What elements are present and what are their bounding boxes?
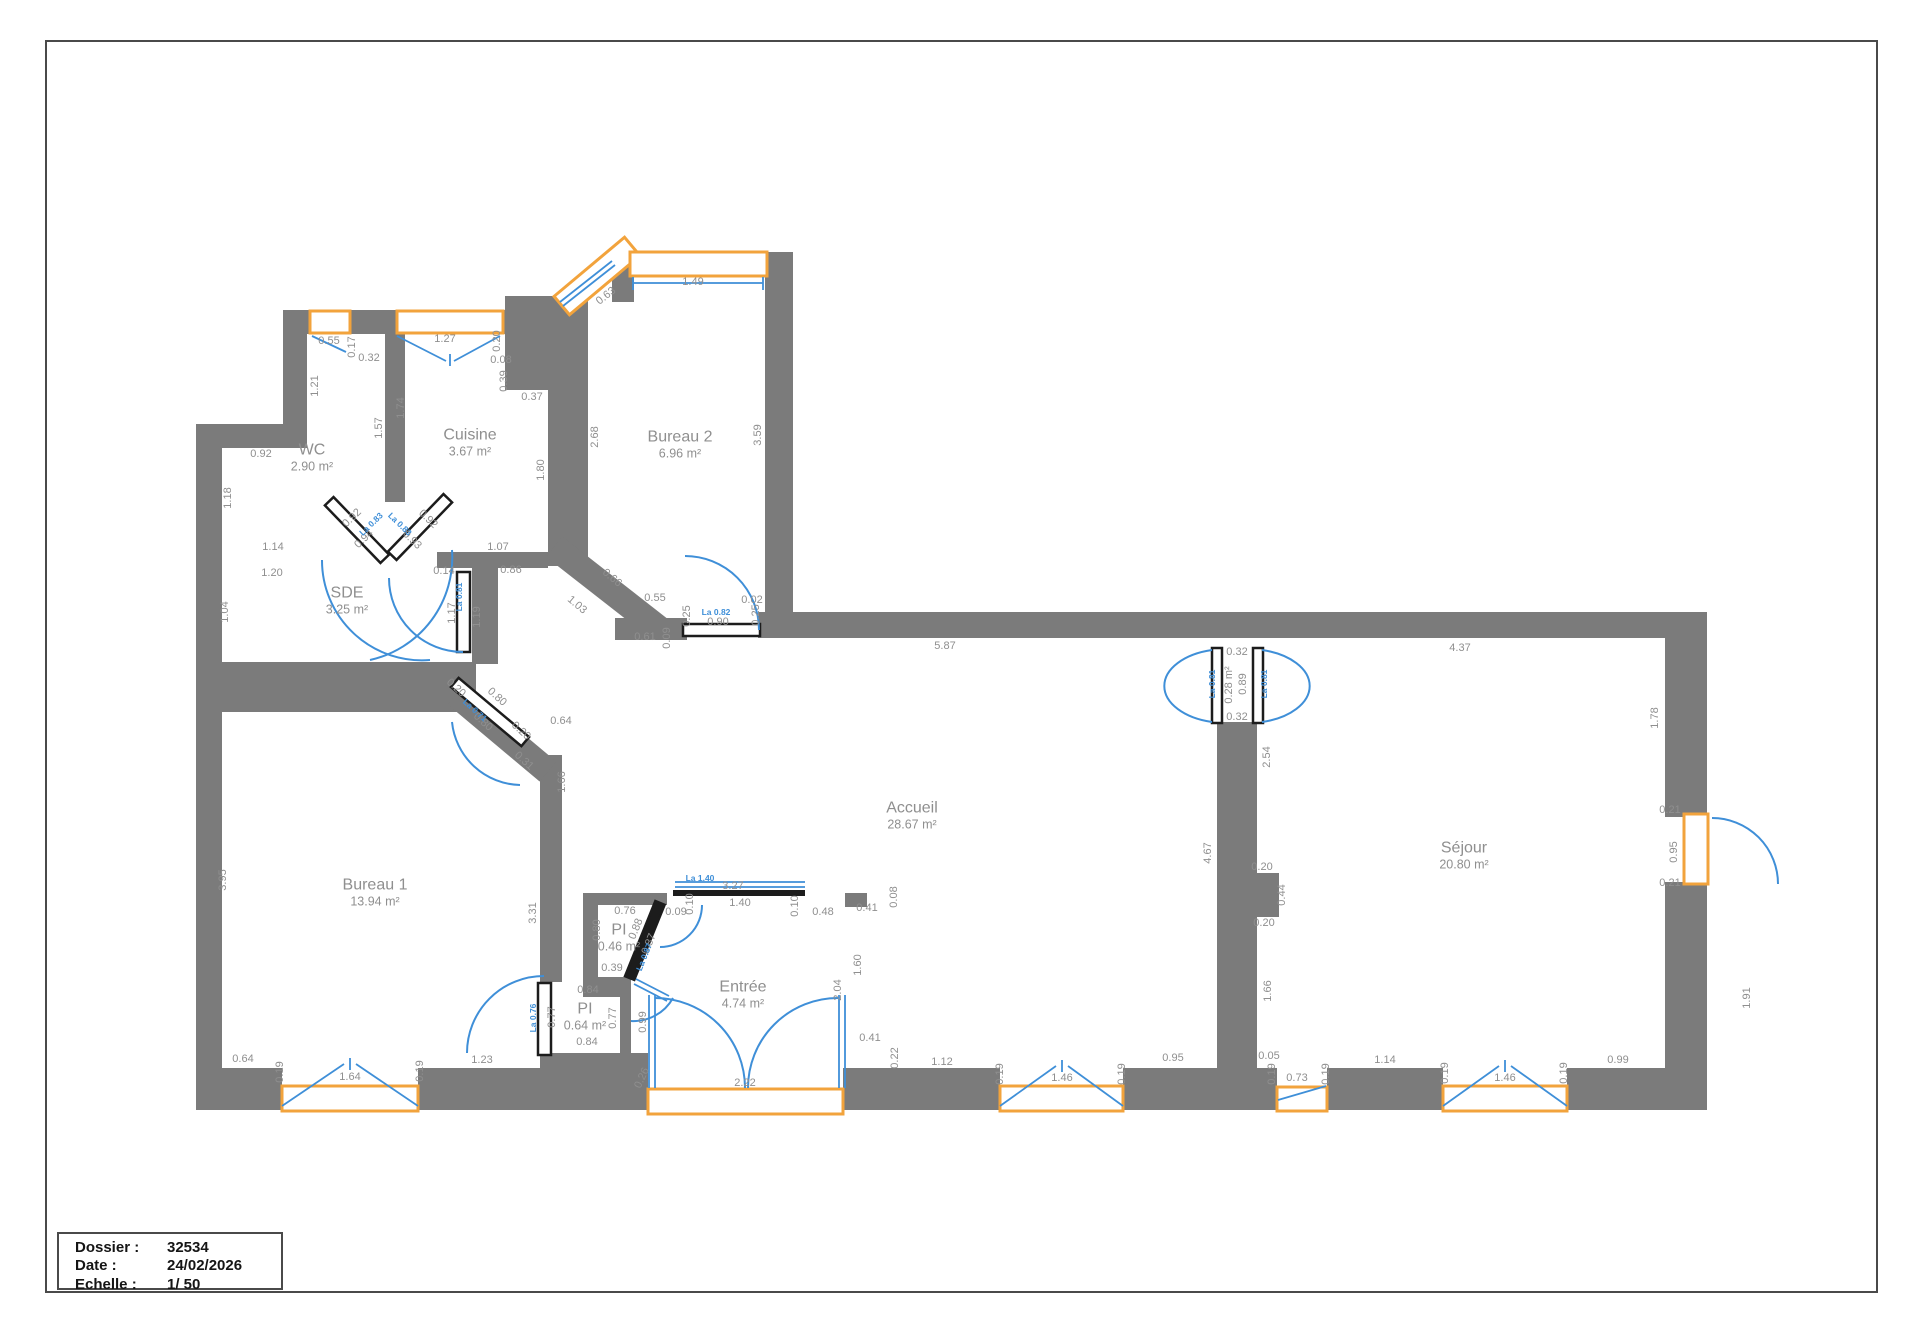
room-label: Accueil28.67 m² (886, 801, 938, 832)
dimension-label: 1.66 (1262, 980, 1274, 1001)
dimension-label: 1.18 (222, 487, 234, 508)
dimension-label: 0.55 (644, 592, 665, 604)
room-area: 3.67 m² (443, 444, 496, 458)
dimension-label: 0.95 (1162, 1052, 1183, 1064)
dimension-label: 1.21 (309, 375, 321, 396)
dimension-label: 0.21 (1659, 804, 1680, 816)
room-name: PI (564, 1002, 606, 1019)
dimension-label: 1.14 (1374, 1054, 1395, 1066)
dimension-label: 0.08 (888, 886, 900, 907)
room-area: 13.94 m² (343, 894, 408, 908)
dimension-label: 0.32 (1226, 646, 1247, 658)
dimension-label: 3.59 (752, 424, 764, 445)
dimension-label: 1.20 (261, 567, 282, 579)
dimension-label: 0.92 (416, 507, 440, 531)
title-block: Dossier : 32534 Date : 24/02/2026 Echell… (57, 1232, 283, 1290)
dimension-label: 1.66 (556, 771, 568, 792)
dimension-label: 0.41 (856, 902, 877, 914)
dimension-label: 1.57 (373, 417, 385, 438)
date-value: 24/02/2026 (167, 1257, 242, 1275)
dimension-label: 0.84 (577, 984, 598, 996)
dimension-label: 1.91 (1741, 987, 1753, 1008)
room-area: 4.74 m² (719, 996, 766, 1010)
dimension-label: 0.08 (490, 354, 511, 366)
room-area: 2.90 m² (291, 459, 333, 473)
dimension-label: 0.31 (512, 749, 536, 772)
dimension-label: 0.19 (1320, 1063, 1332, 1084)
dimension-label: 1.64 (339, 1071, 360, 1083)
door-width-label: La 0.81 (454, 583, 464, 612)
dossier-value: 32534 (167, 1239, 209, 1257)
dimension-label: 0.99 (637, 1011, 649, 1032)
dimension-label: 5.87 (934, 640, 955, 652)
dimension-label: 0.26 (632, 1066, 652, 1090)
room-area: 6.96 m² (648, 446, 713, 460)
dimension-label: 0.95 (1668, 841, 1680, 862)
floor-plan-page: 0.550.170.321.210.921.571.741.270.200.08… (0, 0, 1920, 1331)
dimension-label: 0.14 (433, 565, 454, 577)
room-area: 28.67 m² (886, 817, 938, 831)
dimension-label: 0.64 (550, 715, 571, 727)
room-label: Séjour20.80 m² (1439, 841, 1488, 872)
dimension-label: 0.66 (600, 567, 624, 590)
dimension-label: 1.74 (395, 397, 407, 418)
dimension-label: 0.28 m² (1223, 666, 1235, 703)
dimension-label: 0.20 (491, 330, 503, 351)
scale-value: 1/ 50 (167, 1276, 200, 1294)
dimension-label: 0.20 (444, 676, 468, 699)
dimension-label: 0.55 (318, 335, 339, 347)
room-name: Bureau 1 (343, 878, 408, 895)
dimension-label: 0.63 (594, 285, 618, 308)
dossier-row: Dossier : 32534 (75, 1239, 281, 1257)
dimension-label: 1.27 (434, 333, 455, 345)
room-area: 0.46 m² (598, 939, 640, 953)
dimension-label: 0.39 (601, 962, 622, 974)
dimension-label: 3.27 (722, 880, 743, 892)
room-name: Bureau 2 (648, 430, 713, 447)
dimension-label: 0.73 (1286, 1072, 1307, 1084)
dimension-label: 0.80 (485, 685, 509, 708)
dimension-label: 0.09 (661, 627, 673, 648)
room-label: SDE3.25 m² (326, 586, 368, 617)
dimension-label: 0.61 (634, 631, 655, 643)
dimension-label: 0.19 (274, 1061, 286, 1082)
room-name: WC (291, 443, 333, 460)
dimension-label: 1.07 (487, 541, 508, 553)
dimension-label: 1.40 (729, 897, 750, 909)
dimension-label: 2.22 (734, 1077, 755, 1089)
room-name: Séjour (1439, 841, 1488, 858)
dimension-label: 0.41 (859, 1032, 880, 1044)
dimension-label: 0.32 (358, 352, 379, 364)
dimension-label: 2.68 (589, 426, 601, 447)
dimension-label: 0.77 (607, 1007, 619, 1028)
dimension-label: 0.19 (994, 1063, 1006, 1084)
door-width-label: La 0.83 (386, 510, 414, 537)
dimension-label: 0.44 (1276, 884, 1288, 905)
dimension-label: 1.60 (852, 954, 864, 975)
dossier-label: Dossier : (75, 1239, 167, 1257)
dimension-label: 0.10 (684, 893, 696, 914)
dimension-label: 0.99 (1607, 1054, 1628, 1066)
dimension-label: 0.77 (546, 1006, 558, 1027)
date-row: Date : 24/02/2026 (75, 1257, 281, 1275)
dimension-label: 3.95 (217, 869, 229, 890)
room-name: Accueil (886, 801, 938, 818)
room-label: PI0.64 m² (564, 1002, 606, 1033)
scale-row: Echelle : 1/ 50 (75, 1276, 281, 1294)
door-width-label: La 0.81 (1207, 670, 1217, 699)
dimension-label: 1.80 (535, 459, 547, 480)
dimension-label: 0.25 (681, 605, 693, 626)
room-name: PI (598, 923, 640, 940)
door-width-label: La 1.40 (686, 873, 715, 883)
dimension-label: 0.84 (576, 1036, 597, 1048)
dimension-label: 1.19 (471, 606, 483, 627)
scale-label: Echelle : (75, 1276, 167, 1294)
dimension-label: 0.17 (346, 336, 358, 357)
dimension-label: 0.86 (500, 564, 521, 576)
dimension-label: 0.90 (707, 616, 728, 628)
dimension-label: 0.19 (414, 1060, 426, 1081)
dimension-label: 1.23 (471, 1054, 492, 1066)
dimension-label: 0.64 (232, 1053, 253, 1065)
dimension-label: 4.37 (1449, 642, 1470, 654)
dimension-label: 0.22 (889, 1047, 901, 1068)
dimension-label: 1.03 (565, 594, 589, 617)
dimension-label: 0.89 (1237, 673, 1249, 694)
dimension-label: 2.54 (1261, 746, 1273, 767)
room-area: 20.80 m² (1439, 857, 1488, 871)
dimension-label: 0.21 (1659, 877, 1680, 889)
date-label: Date : (75, 1257, 167, 1275)
dimension-label: 0.19 (1116, 1063, 1128, 1084)
dimension-label: 0.20 (1251, 861, 1272, 873)
room-label: Bureau 113.94 m² (343, 878, 408, 909)
dimension-label: 1.14 (262, 541, 283, 553)
dimension-label: 0.05 (1258, 1050, 1279, 1062)
dimension-label: 4.67 (1202, 842, 1214, 863)
dimension-label: 1.46 (1494, 1072, 1515, 1084)
dimension-label: 0.48 (812, 906, 833, 918)
dimension-label: 0.39 (498, 370, 510, 391)
room-label: WC2.90 m² (291, 443, 333, 474)
dimension-label: 0.76 (614, 905, 635, 917)
room-label: Bureau 26.96 m² (648, 430, 713, 461)
dimension-label: 0.19 (1266, 1063, 1278, 1084)
door-width-label: La 0.82 (702, 607, 731, 617)
dimension-label: 2.04 (832, 979, 844, 1000)
room-name: Cuisine (443, 428, 496, 445)
dimension-label: 0.19 (1439, 1062, 1451, 1083)
room-name: SDE (326, 586, 368, 603)
dimension-label: 0.25 (750, 604, 762, 625)
dimension-label: 0.32 (1226, 711, 1247, 723)
dimension-label: 0.20 (509, 719, 533, 742)
dimension-label: 0.19 (1558, 1062, 1570, 1083)
dimension-label: 0.37 (521, 391, 542, 403)
door-width-label: La 0.76 (528, 1004, 538, 1033)
dimension-label: 0.10 (789, 895, 801, 916)
dimension-label: 1.78 (1649, 707, 1661, 728)
room-label: PI0.46 m² (598, 923, 640, 954)
dimension-label: 0.92 (250, 448, 271, 460)
room-area: 0.64 m² (564, 1018, 606, 1032)
door-width-label: La 0.81 (1259, 670, 1269, 699)
room-label: Entrée4.74 m² (719, 980, 766, 1011)
dimension-label: 1.04 (219, 601, 231, 622)
dimension-label: 1.46 (1051, 1072, 1072, 1084)
room-label: Cuisine3.67 m² (443, 428, 496, 459)
dimension-label: 0.20 (1253, 917, 1274, 929)
room-name: Entrée (719, 980, 766, 997)
room-area: 3.25 m² (326, 602, 368, 616)
dimension-label: 1.12 (931, 1056, 952, 1068)
dimension-label: 3.31 (527, 902, 539, 923)
dimension-label: 1.49 (682, 276, 703, 288)
labels-layer: 0.550.170.321.210.921.571.741.270.200.08… (0, 0, 1920, 1331)
